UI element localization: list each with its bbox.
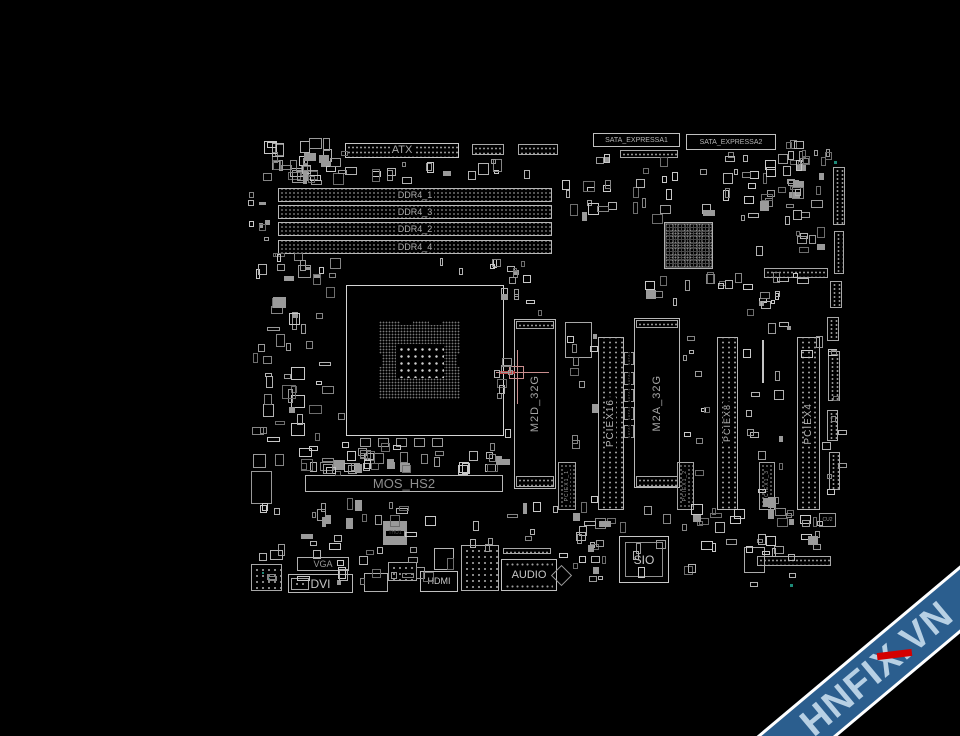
component bbox=[758, 489, 766, 494]
component bbox=[315, 433, 320, 441]
component bbox=[562, 180, 570, 190]
component bbox=[329, 543, 341, 549]
m2d-32g-slot-label: M2D_32G bbox=[530, 373, 541, 434]
component bbox=[785, 216, 789, 225]
component bbox=[391, 572, 397, 579]
component bbox=[326, 287, 335, 298]
component bbox=[381, 443, 390, 451]
mosfet-heatsink-label: MOS_HS2 bbox=[371, 477, 437, 490]
component bbox=[758, 534, 766, 545]
component bbox=[423, 572, 434, 581]
component bbox=[329, 273, 337, 278]
component bbox=[712, 543, 717, 552]
component bbox=[644, 506, 652, 515]
component bbox=[265, 373, 272, 377]
component bbox=[783, 166, 791, 176]
component bbox=[663, 514, 671, 524]
component bbox=[286, 343, 291, 350]
component bbox=[432, 438, 443, 447]
m2d-connector-dots bbox=[516, 476, 554, 487]
component bbox=[553, 506, 558, 513]
component bbox=[248, 200, 254, 205]
component bbox=[440, 258, 443, 266]
pciex1-slot-1-label: PCIEX1_1 bbox=[565, 468, 570, 503]
component bbox=[833, 396, 839, 401]
component bbox=[591, 496, 598, 503]
component bbox=[730, 516, 741, 524]
component bbox=[593, 334, 597, 339]
component bbox=[794, 141, 804, 149]
component bbox=[704, 407, 710, 413]
component bbox=[766, 167, 776, 177]
dvi-port-label: DVI bbox=[308, 578, 332, 590]
component bbox=[514, 289, 519, 296]
component bbox=[838, 463, 847, 468]
component bbox=[825, 152, 832, 159]
component bbox=[339, 569, 348, 582]
component bbox=[490, 443, 496, 451]
ddr4-slot-4-label: DDR4_4 bbox=[396, 243, 435, 252]
component bbox=[778, 187, 786, 192]
component bbox=[683, 355, 687, 361]
component bbox=[786, 142, 792, 149]
component bbox=[346, 518, 353, 529]
component bbox=[710, 513, 722, 518]
component bbox=[652, 214, 663, 224]
component bbox=[360, 578, 366, 585]
component bbox=[760, 201, 769, 211]
sata-expressa1-connector[interactable]: SATA_EXPRESSA1 bbox=[593, 133, 680, 147]
component bbox=[788, 151, 794, 161]
component bbox=[355, 500, 362, 510]
component bbox=[817, 244, 826, 250]
component bbox=[643, 168, 649, 174]
component bbox=[337, 560, 345, 565]
component bbox=[400, 452, 409, 463]
component bbox=[360, 453, 366, 458]
component bbox=[462, 463, 470, 474]
component bbox=[360, 438, 371, 447]
component bbox=[387, 168, 395, 176]
component bbox=[672, 172, 678, 181]
component bbox=[743, 284, 752, 290]
component bbox=[289, 313, 301, 326]
component bbox=[321, 503, 326, 512]
pin-header[interactable] bbox=[830, 281, 842, 308]
component bbox=[599, 521, 610, 527]
component bbox=[308, 176, 315, 184]
component bbox=[775, 371, 780, 380]
component bbox=[768, 323, 777, 334]
component bbox=[268, 576, 277, 581]
component bbox=[803, 156, 811, 165]
pciex8-slot-label: PCIEX8 bbox=[723, 402, 732, 444]
component bbox=[264, 394, 272, 405]
component bbox=[579, 381, 585, 388]
component bbox=[310, 541, 316, 546]
pin-header[interactable] bbox=[834, 231, 844, 274]
component bbox=[421, 454, 428, 464]
component bbox=[372, 569, 381, 578]
pciex8-slot[interactable]: PCIEX8 bbox=[717, 337, 738, 510]
component bbox=[389, 502, 393, 509]
sata-port-1-label: SATA1 bbox=[628, 349, 631, 367]
component bbox=[402, 573, 414, 579]
component bbox=[789, 519, 793, 525]
component bbox=[811, 200, 823, 208]
component bbox=[633, 202, 639, 214]
lan-port[interactable] bbox=[461, 545, 499, 591]
component bbox=[371, 463, 379, 470]
component bbox=[499, 385, 506, 393]
component bbox=[604, 154, 610, 163]
ddr4-slot-2-label: DDR4_2 bbox=[396, 225, 435, 234]
component bbox=[570, 368, 579, 376]
component bbox=[297, 576, 310, 581]
component bbox=[725, 156, 735, 162]
sata-expressa2-connector[interactable]: SATA_EXPRESSA2 bbox=[686, 134, 776, 150]
m2a-top-dots bbox=[636, 320, 678, 328]
component bbox=[581, 502, 587, 513]
sata-port-3-label: SATA3 bbox=[628, 386, 631, 404]
component bbox=[685, 280, 691, 292]
component bbox=[747, 429, 754, 436]
led-dot bbox=[262, 572, 264, 574]
component bbox=[743, 349, 752, 357]
pin-header[interactable] bbox=[827, 410, 838, 441]
component bbox=[831, 350, 838, 355]
component bbox=[312, 512, 316, 517]
component bbox=[306, 267, 311, 270]
component bbox=[502, 459, 510, 465]
component bbox=[494, 370, 499, 378]
component bbox=[526, 300, 535, 304]
component bbox=[291, 423, 305, 436]
component bbox=[817, 521, 824, 526]
sata-port-1[interactable]: SATA1 bbox=[624, 352, 634, 365]
component bbox=[469, 451, 479, 460]
component bbox=[642, 198, 646, 208]
component bbox=[258, 344, 265, 351]
component bbox=[725, 280, 733, 289]
component bbox=[596, 540, 603, 547]
pciex1-slot-2-label: PCIEX1_2 bbox=[683, 468, 688, 503]
component bbox=[319, 267, 323, 274]
component bbox=[597, 206, 609, 211]
component bbox=[735, 273, 742, 283]
component bbox=[338, 413, 345, 420]
component bbox=[801, 350, 813, 358]
component bbox=[330, 158, 341, 166]
ddr4-slot-1[interactable]: DDR4_1 bbox=[278, 188, 552, 202]
component bbox=[259, 224, 266, 230]
component bbox=[566, 190, 570, 197]
trace-line bbox=[762, 340, 764, 383]
pin-header[interactable] bbox=[828, 351, 840, 401]
component bbox=[703, 210, 715, 216]
component bbox=[322, 386, 334, 394]
component bbox=[523, 503, 527, 514]
component bbox=[827, 489, 835, 495]
component bbox=[359, 556, 367, 566]
component bbox=[399, 506, 409, 511]
component bbox=[590, 346, 598, 352]
pin-header[interactable] bbox=[829, 452, 840, 490]
socket-notch bbox=[429, 318, 442, 325]
component bbox=[263, 356, 271, 365]
component bbox=[273, 297, 286, 308]
component bbox=[583, 181, 595, 192]
component bbox=[746, 410, 752, 417]
component bbox=[700, 169, 708, 175]
component bbox=[390, 515, 399, 528]
component bbox=[645, 281, 655, 290]
component bbox=[333, 173, 344, 185]
m2d-32g-slot[interactable]: M2D_32G bbox=[514, 319, 556, 489]
component bbox=[530, 529, 534, 534]
component bbox=[347, 451, 356, 461]
component bbox=[274, 508, 280, 515]
m2a-32g-slot-label: M2A_32G bbox=[652, 373, 663, 434]
component bbox=[319, 362, 332, 367]
component bbox=[348, 465, 357, 474]
sata-expressa2-connector-label: SATA_EXPRESSA2 bbox=[698, 139, 765, 146]
power-header[interactable] bbox=[518, 144, 558, 155]
component bbox=[309, 405, 323, 414]
ddr4-slot-1-label: DDR4_1 bbox=[396, 191, 435, 200]
component bbox=[275, 421, 285, 425]
component bbox=[267, 437, 280, 442]
ddr4-slot-2[interactable]: DDR4_2 bbox=[278, 222, 552, 236]
pch-chipset[interactable] bbox=[664, 222, 713, 269]
component bbox=[435, 451, 443, 456]
sata-port-4[interactable]: SATA4 bbox=[624, 407, 634, 420]
atx-connector-label: ATX bbox=[390, 145, 415, 156]
component bbox=[275, 454, 284, 465]
component bbox=[779, 436, 783, 443]
component bbox=[341, 151, 349, 157]
ddr4-slot-4[interactable]: DDR4_4 bbox=[278, 240, 552, 254]
component bbox=[673, 298, 677, 306]
component bbox=[588, 545, 594, 552]
component bbox=[323, 464, 333, 474]
component bbox=[779, 463, 784, 470]
component bbox=[638, 567, 645, 578]
component bbox=[799, 247, 809, 253]
pin-header[interactable] bbox=[833, 167, 845, 225]
component bbox=[768, 510, 775, 518]
pciex4-slot-label: PCIEX4 bbox=[804, 401, 814, 447]
component bbox=[402, 465, 411, 474]
component bbox=[559, 553, 567, 558]
component bbox=[684, 432, 691, 436]
component bbox=[263, 173, 272, 181]
component bbox=[267, 327, 280, 331]
component bbox=[509, 277, 516, 284]
component bbox=[592, 404, 598, 413]
component bbox=[313, 274, 321, 285]
component bbox=[827, 474, 833, 479]
component bbox=[786, 513, 792, 517]
component bbox=[375, 515, 382, 525]
component bbox=[788, 180, 799, 186]
component bbox=[262, 503, 268, 511]
component bbox=[427, 162, 434, 172]
component bbox=[342, 442, 349, 448]
m2a-32g-slot[interactable]: M2A_32G bbox=[634, 318, 680, 488]
component bbox=[689, 350, 694, 354]
component bbox=[405, 532, 417, 537]
component bbox=[322, 458, 334, 463]
component bbox=[276, 334, 285, 346]
component bbox=[468, 171, 476, 180]
component bbox=[284, 374, 290, 379]
component bbox=[695, 371, 702, 378]
component bbox=[434, 457, 440, 467]
component bbox=[259, 553, 268, 561]
component bbox=[814, 150, 818, 155]
component bbox=[501, 294, 508, 300]
led-dot bbox=[790, 584, 793, 587]
component bbox=[816, 186, 821, 195]
component bbox=[313, 550, 321, 559]
component bbox=[682, 524, 688, 531]
component bbox=[443, 171, 451, 176]
component bbox=[425, 516, 435, 526]
component bbox=[387, 462, 395, 470]
component bbox=[459, 268, 463, 276]
component bbox=[408, 557, 418, 563]
component bbox=[521, 261, 525, 267]
component bbox=[750, 582, 758, 588]
led-dot bbox=[834, 161, 837, 164]
component bbox=[301, 324, 306, 334]
component bbox=[591, 556, 600, 563]
component bbox=[290, 160, 297, 173]
ddr4-slot-3[interactable]: DDR4_3 bbox=[278, 205, 552, 219]
component bbox=[579, 556, 587, 562]
vga-port-label: VGA bbox=[311, 560, 334, 569]
component bbox=[573, 357, 579, 366]
component bbox=[303, 171, 307, 183]
pin-header[interactable] bbox=[827, 317, 839, 341]
sata-port-5-label: SATA5 bbox=[628, 422, 631, 440]
atx-connector[interactable]: ATX bbox=[345, 143, 459, 158]
component bbox=[777, 518, 788, 527]
component bbox=[249, 221, 254, 227]
component bbox=[774, 390, 784, 400]
watermark-banner: HNFIX.VN bbox=[745, 553, 960, 736]
component bbox=[691, 504, 703, 516]
component bbox=[277, 264, 285, 270]
component bbox=[741, 215, 746, 222]
component bbox=[279, 160, 283, 171]
component bbox=[252, 427, 264, 436]
component bbox=[734, 169, 738, 175]
sata-port-3[interactable]: SATA3 bbox=[624, 389, 634, 402]
component bbox=[786, 204, 794, 209]
component bbox=[743, 155, 748, 162]
component bbox=[372, 169, 380, 182]
component bbox=[697, 521, 703, 525]
component bbox=[576, 532, 586, 541]
component bbox=[366, 550, 373, 555]
power-header[interactable] bbox=[472, 144, 504, 155]
component bbox=[801, 212, 810, 218]
component bbox=[751, 392, 760, 397]
component bbox=[598, 576, 604, 581]
component bbox=[742, 172, 751, 178]
pciex4-slot[interactable]: PCIEX4 bbox=[797, 337, 820, 510]
component bbox=[715, 522, 725, 534]
component bbox=[756, 246, 763, 256]
component bbox=[570, 204, 578, 216]
component bbox=[447, 558, 454, 570]
boardview-canvas: ATXSATA_EXPRESSA1SATA_EXPRESSA2DDR4_1DDR… bbox=[0, 0, 960, 736]
component bbox=[309, 446, 318, 451]
component bbox=[596, 157, 603, 164]
component bbox=[485, 544, 490, 552]
component bbox=[787, 326, 791, 331]
component bbox=[725, 188, 730, 198]
pciex1-slot-1[interactable]: PCIEX1_1 bbox=[558, 462, 576, 510]
component bbox=[797, 236, 806, 244]
component bbox=[334, 535, 342, 542]
component bbox=[410, 547, 417, 552]
watermark-text: HNFIX.VN bbox=[794, 595, 960, 736]
sata-expressa1-connector-label: SATA_EXPRESSA1 bbox=[603, 137, 670, 144]
component bbox=[502, 358, 512, 367]
component bbox=[253, 353, 258, 364]
sata-port-2[interactable]: SATA2 bbox=[624, 372, 634, 385]
component bbox=[491, 159, 496, 165]
component bbox=[758, 451, 766, 459]
component bbox=[291, 367, 305, 380]
component bbox=[258, 264, 267, 275]
audio-jack-block-label: AUDIO bbox=[510, 570, 549, 581]
sata-port-5[interactable]: SATA5 bbox=[624, 425, 634, 438]
component bbox=[788, 554, 795, 561]
mosfet-heatsink[interactable]: MOS_HS2 bbox=[305, 475, 503, 492]
component bbox=[687, 336, 695, 341]
component bbox=[489, 454, 497, 462]
component bbox=[330, 258, 341, 270]
pciex16-slot-label: PCIEX16 bbox=[606, 397, 616, 449]
component bbox=[497, 393, 502, 399]
ddr4-slot-3-label: DDR4_3 bbox=[396, 208, 435, 217]
component bbox=[760, 292, 770, 299]
component bbox=[748, 213, 758, 218]
pciex16-slot[interactable]: PCIEX16 bbox=[598, 337, 624, 510]
component bbox=[362, 514, 367, 522]
thu1-chip-label: THU1 bbox=[386, 531, 403, 536]
component bbox=[793, 210, 801, 219]
component bbox=[838, 430, 846, 435]
component bbox=[593, 567, 599, 575]
net-highlight-v bbox=[517, 350, 518, 404]
component bbox=[695, 470, 704, 477]
component bbox=[646, 290, 656, 299]
component bbox=[815, 531, 821, 538]
component bbox=[266, 376, 273, 388]
component bbox=[488, 538, 493, 544]
pin-strip[interactable] bbox=[620, 150, 678, 158]
component bbox=[538, 310, 542, 316]
component bbox=[478, 163, 489, 175]
component bbox=[326, 515, 331, 524]
component bbox=[533, 502, 540, 513]
component bbox=[414, 438, 425, 447]
